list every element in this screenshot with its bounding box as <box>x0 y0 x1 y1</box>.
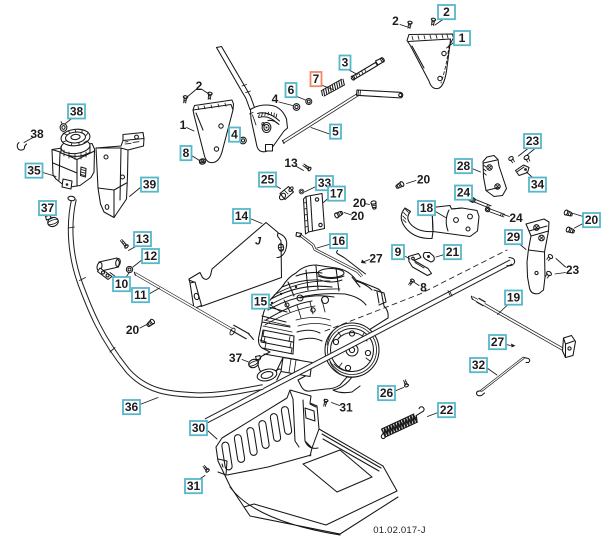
svg-text:2: 2 <box>392 14 399 28</box>
svg-text:24: 24 <box>457 186 471 200</box>
svg-text:31: 31 <box>339 401 353 415</box>
svg-text:26: 26 <box>380 386 394 400</box>
svg-text:5: 5 <box>332 125 339 139</box>
svg-text:20: 20 <box>585 213 599 227</box>
svg-text:21: 21 <box>446 245 460 259</box>
svg-text:1: 1 <box>180 118 187 132</box>
svg-text:38: 38 <box>70 105 84 119</box>
svg-text:22: 22 <box>440 403 454 417</box>
svg-text:34: 34 <box>531 178 545 192</box>
svg-text:24: 24 <box>509 211 523 225</box>
svg-text:13: 13 <box>284 156 298 170</box>
svg-text:36: 36 <box>125 400 139 414</box>
svg-text:14: 14 <box>235 209 249 223</box>
svg-text:J: J <box>255 236 262 248</box>
svg-text:8: 8 <box>420 281 427 295</box>
svg-text:2: 2 <box>443 5 450 19</box>
svg-text:23: 23 <box>526 134 540 148</box>
svg-text:37: 37 <box>41 201 55 215</box>
svg-text:20: 20 <box>351 209 365 223</box>
svg-text:12: 12 <box>144 249 158 263</box>
svg-text:20: 20 <box>353 196 367 210</box>
svg-text:4: 4 <box>231 128 238 142</box>
svg-text:30: 30 <box>192 421 206 435</box>
svg-text:35: 35 <box>27 164 41 178</box>
svg-text:18: 18 <box>420 201 434 215</box>
svg-text:8: 8 <box>183 146 190 160</box>
svg-text:20: 20 <box>126 323 140 337</box>
svg-text:28: 28 <box>457 159 471 173</box>
svg-text:27: 27 <box>369 252 383 266</box>
svg-text:25: 25 <box>261 173 275 187</box>
svg-text:17: 17 <box>330 187 344 201</box>
svg-text:37: 37 <box>229 351 243 365</box>
svg-text:27: 27 <box>491 335 505 349</box>
svg-text:39: 39 <box>143 178 157 192</box>
svg-text:9: 9 <box>395 245 402 259</box>
svg-text:31: 31 <box>187 479 201 493</box>
svg-text:2: 2 <box>196 79 203 93</box>
svg-text:16: 16 <box>332 234 346 248</box>
svg-text:3: 3 <box>342 56 349 70</box>
svg-text:15: 15 <box>254 295 268 309</box>
svg-text:1: 1 <box>459 31 466 45</box>
svg-text:4: 4 <box>272 92 279 106</box>
svg-text:19: 19 <box>507 291 521 305</box>
svg-text:29: 29 <box>507 230 521 244</box>
svg-text:11: 11 <box>134 288 147 302</box>
svg-text:23: 23 <box>566 263 580 277</box>
svg-text:7: 7 <box>313 72 320 86</box>
svg-text:10: 10 <box>115 277 129 291</box>
svg-text:6: 6 <box>288 83 295 97</box>
svg-text:20: 20 <box>417 173 431 187</box>
svg-text:32: 32 <box>472 358 486 372</box>
svg-text:38: 38 <box>30 127 44 141</box>
svg-text:01.02.017-J: 01.02.017-J <box>373 525 425 536</box>
svg-text:13: 13 <box>136 232 150 246</box>
